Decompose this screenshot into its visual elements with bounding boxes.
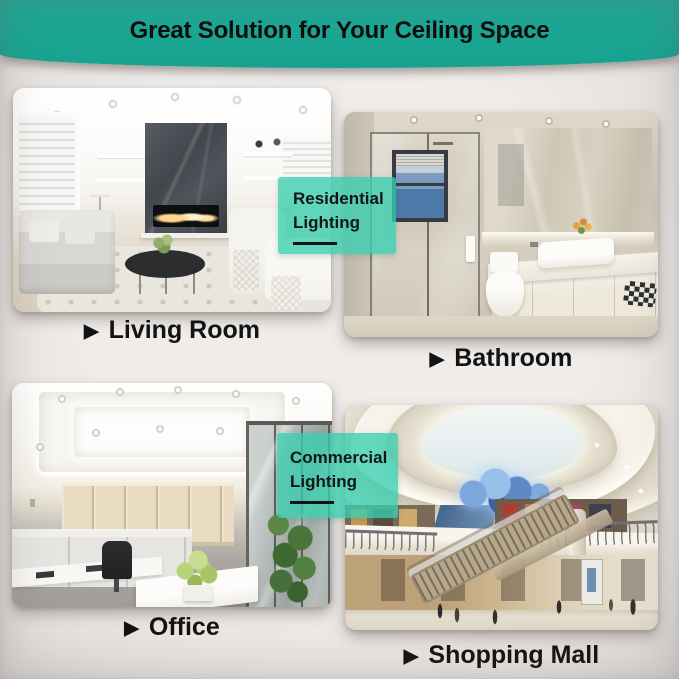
arrow-icon: ▶ (404, 647, 419, 666)
shoppers (345, 555, 658, 630)
vessel-sink (538, 237, 614, 268)
commercial-lighting-badge: Commercial Lighting (277, 433, 398, 518)
potted-plant (170, 547, 224, 597)
office-chair (102, 541, 132, 579)
toilet-bowl (486, 270, 524, 316)
toilet-tank (490, 252, 518, 272)
arrow-icon: ▶ (430, 350, 445, 369)
shelf-decor (251, 134, 291, 152)
flower-vase (568, 216, 596, 240)
badge-text-line: Lighting (290, 470, 398, 494)
arrow-icon: ▶ (124, 619, 139, 638)
arrow-icon: ▶ (84, 322, 99, 341)
badge-text-line: Lighting (293, 211, 396, 235)
wall-switch (30, 499, 35, 507)
badge-text-line: Residential (293, 187, 396, 211)
towel (466, 236, 475, 262)
header-banner: Great Solution for Your Ceiling Space (0, 0, 679, 68)
caption-office: ▶ Office (12, 611, 332, 643)
table-plant (151, 234, 177, 254)
poster: Great Solution for Your Ceiling Space (0, 0, 679, 679)
bathroom-floor (344, 316, 658, 337)
caption-label: Bathroom (454, 344, 572, 373)
page-title: Great Solution for Your Ceiling Space (0, 0, 679, 45)
badge-underline (293, 242, 337, 245)
badge-text-line: Commercial (290, 446, 398, 470)
caption-living-room: ▶ Living Room (13, 314, 331, 346)
wall-shelves (97, 154, 149, 158)
caption-label: Office (149, 613, 220, 642)
floor-lamp-shade (89, 182, 111, 197)
wall-shelves (243, 152, 293, 156)
badge-underline (290, 501, 334, 504)
caption-label: Living Room (109, 316, 260, 345)
caption-label: Shopping Mall (428, 641, 599, 670)
caption-bathroom: ▶ Bathroom (344, 342, 658, 374)
coffee-table (125, 250, 205, 278)
caption-shopping-mall: ▶ Shopping Mall (345, 639, 658, 671)
checkered-basket (623, 280, 657, 307)
balcony-railing (345, 529, 437, 551)
sofa (19, 210, 115, 294)
residential-lighting-badge: Residential Lighting (278, 177, 396, 254)
shower-window (392, 150, 448, 222)
fireplace (145, 123, 227, 233)
